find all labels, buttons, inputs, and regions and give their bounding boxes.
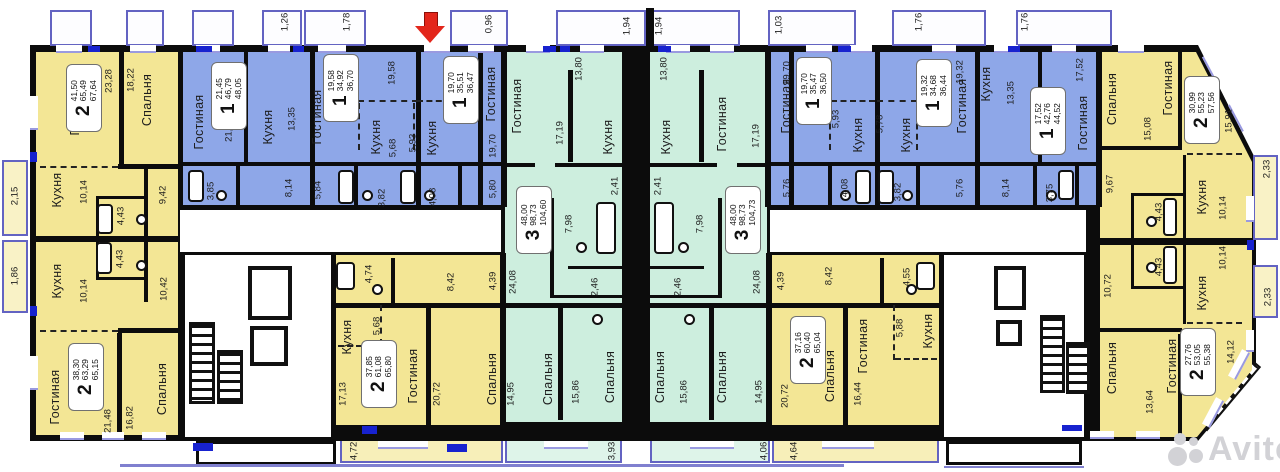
balcony <box>126 10 164 46</box>
window <box>1246 196 1254 222</box>
dimension-label: 13,80 <box>659 57 670 81</box>
dimension-label: 5,76 <box>955 179 966 198</box>
window <box>30 356 38 390</box>
window <box>710 45 734 53</box>
window-sill-accent <box>1008 46 1020 52</box>
dimension-label: 17,19 <box>555 121 566 145</box>
dimension-label: 4,43 <box>115 250 126 269</box>
elevator-shaft <box>248 266 292 320</box>
dimension-label: 1,03 <box>774 16 785 35</box>
staircase <box>217 350 243 404</box>
sanitary-icon <box>678 242 689 253</box>
apartment-rooms-count: 3 <box>732 230 754 241</box>
dashed-partition <box>40 330 118 332</box>
balcony <box>556 10 646 46</box>
window <box>1090 431 1114 439</box>
room-label: Кухня <box>1195 180 1209 215</box>
dimension-label: 4,64 <box>789 442 800 461</box>
wall <box>550 295 622 298</box>
wall <box>118 164 178 169</box>
balcony <box>304 10 366 46</box>
apartment-areas: 19,7035,4736,50 <box>800 73 828 94</box>
apartment-area-value: 65,15 <box>91 359 100 380</box>
wall <box>828 166 832 207</box>
apartment-card: 237,1660,4065,04 <box>790 316 826 384</box>
dimension-label: 13,35 <box>287 107 298 131</box>
room-label: Кухня <box>899 118 913 153</box>
apartment-card-inner: 227,7653,0555,38 <box>1182 330 1214 394</box>
apartment-area-value: 104,73 <box>748 200 757 226</box>
wall <box>766 253 772 425</box>
wall <box>650 163 717 167</box>
room-label: Кухня <box>425 121 439 156</box>
wall <box>1100 240 1252 245</box>
apartment-card: 119,3234,6836,44 <box>916 59 952 127</box>
apartment-areas: 30,9955,2357,56 <box>1188 92 1216 113</box>
dimension-label: 15,91 <box>1224 109 1235 133</box>
window-sill-accent <box>560 46 570 52</box>
room-label: Кухня <box>921 314 935 349</box>
apartment-area-value: 36,47 <box>466 72 475 93</box>
window <box>268 45 290 53</box>
dimension-label: 17,19 <box>751 124 762 148</box>
apartment-card: 230,9955,2357,56 <box>1184 76 1220 144</box>
wall <box>391 258 395 305</box>
room-label: Кухня <box>601 120 615 155</box>
dimension-label: 16,82 <box>125 406 136 430</box>
apartment-card: 117,5242,7644,52 <box>1030 87 1066 155</box>
dimension-label: 7,98 <box>564 215 575 234</box>
window <box>56 45 82 53</box>
bathtub-icon <box>855 170 871 204</box>
dimension-label: 5,68 <box>372 317 383 336</box>
dimension-label: 5,88 <box>895 319 906 338</box>
dimension-label: 1,78 <box>342 13 353 32</box>
window-sill-accent <box>1062 425 1082 431</box>
wall <box>916 166 920 207</box>
stairwell-lobby <box>196 441 336 465</box>
room-label: Гостиная <box>310 90 324 145</box>
apartment-areas: 19,3234,6836,44 <box>920 75 948 96</box>
ground-line <box>944 466 1084 468</box>
apartment-rooms-count: 2 <box>73 105 95 116</box>
dimension-label: 2,41 <box>653 177 664 196</box>
dimension-label: 2,33 <box>1263 288 1274 307</box>
dimension-label: 3,75 <box>1045 184 1056 203</box>
room-label: Спальня <box>155 363 169 415</box>
wall <box>236 166 240 207</box>
bathtub-icon <box>96 242 112 274</box>
dimension-label: 20,72 <box>432 382 443 406</box>
room-label: Кухня <box>851 118 865 153</box>
apartment-areas: 21,4546,7948,05 <box>215 78 243 99</box>
room-label: Гостиная <box>715 97 729 152</box>
room-label: Спальня <box>140 74 154 126</box>
bathtub-icon <box>654 202 674 254</box>
dimension-label: 1,76 <box>1020 13 1031 32</box>
window-sill-accent <box>1247 240 1254 250</box>
dimension-label: 4,08 <box>840 179 851 198</box>
apartment-area-value: 57,56 <box>1207 92 1216 113</box>
apartment-card-inner: 119,3234,6836,44 <box>918 61 950 125</box>
corridor <box>180 210 501 252</box>
room-label: Гостиная <box>856 319 870 374</box>
apartment-card-inner: 119,5834,9236,70 <box>325 56 357 120</box>
dimension-label: 5,80 <box>488 180 499 199</box>
window <box>580 45 604 53</box>
apartment-card: 237,8561,0865,80 <box>361 340 397 408</box>
apartment-area-value: 36,70 <box>346 70 355 91</box>
elevator-shaft <box>996 320 1022 346</box>
apartment-card: 121,4546,7948,05 <box>211 62 247 130</box>
dimension-label: 10,14 <box>1218 196 1229 220</box>
apartment-rooms-count: 1 <box>330 95 352 106</box>
dimension-label: 15,08 <box>1143 117 1154 141</box>
wall <box>1131 193 1134 240</box>
wall <box>458 166 462 207</box>
dimension-label: 3,85 <box>206 182 217 201</box>
window <box>850 45 872 53</box>
dimension-label: 19,32 <box>955 60 966 84</box>
dimension-label: 3,82 <box>893 183 904 202</box>
window-sill-accent <box>293 46 304 52</box>
elevator-shaft <box>250 326 288 366</box>
window <box>60 432 84 440</box>
dimension-label: 10,14 <box>1218 246 1229 270</box>
dimension-label: 21,48 <box>103 409 114 433</box>
window-sill-accent <box>193 443 213 451</box>
wall <box>650 266 704 269</box>
window <box>690 441 734 449</box>
apartment-card: 227,7653,0555,38 <box>1180 328 1216 396</box>
dimension-label: 4,39 <box>776 272 787 291</box>
wall <box>1033 166 1037 207</box>
ground-line <box>120 464 844 467</box>
dimension-label: 0,96 <box>484 15 495 34</box>
dimension-label: 17,52 <box>1075 58 1086 82</box>
bathtub-icon <box>400 170 416 204</box>
apartment-area-value: 48,05 <box>234 78 243 99</box>
window-sill-accent <box>838 46 851 52</box>
sanitary-icon <box>136 214 147 225</box>
dashed-partition <box>358 100 418 102</box>
sanitary-icon <box>902 190 913 201</box>
window-sill-accent <box>30 306 37 316</box>
wall <box>770 162 1100 166</box>
dimension-label: 14,12 <box>1226 340 1237 364</box>
stairwell-lobby <box>946 441 1082 465</box>
apartment-areas: 37,8561,0865,80 <box>365 356 393 377</box>
bathtub-icon <box>97 204 113 234</box>
room-label: Кухня <box>340 320 354 355</box>
wall <box>1100 146 1182 150</box>
dimension-label: 4,39 <box>488 272 499 291</box>
apartment-areas: 19,5834,9236,70 <box>327 70 355 91</box>
floor-plan: ГостинаяСпальняКухня23,2818,2210,144,439… <box>0 0 1280 472</box>
apartment-card: 348,0098,73104,73 <box>725 186 761 254</box>
room-label: Кухня <box>1195 276 1209 311</box>
dimension-label: 19,70 <box>488 134 499 158</box>
dimension-label: 1,94 <box>622 17 633 36</box>
wall <box>117 333 122 437</box>
staircase <box>1066 342 1090 394</box>
bathtub-icon <box>1163 198 1177 236</box>
dimension-label: 14,95 <box>506 382 517 406</box>
apartment-rooms-count: 2 <box>1187 369 1209 380</box>
apartment-area-value: 55,38 <box>1203 344 1212 365</box>
room-label: Спальня <box>485 353 499 405</box>
dimension-label: 5,84 <box>313 181 324 200</box>
apartment-card-inner: 237,8561,0865,80 <box>363 342 395 406</box>
apartment-card: 119,5834,9236,70 <box>323 54 359 122</box>
dimension-label: 4,74 <box>364 265 375 284</box>
apartment-rooms-count: 1 <box>803 98 825 109</box>
apartment-card-inner: 238,3063,2965,15 <box>70 345 102 409</box>
avito-logo-icon <box>1168 433 1204 467</box>
sanitary-icon <box>362 190 373 201</box>
balcony <box>192 10 234 46</box>
wall <box>505 303 622 308</box>
dimension-label: 8,42 <box>824 267 835 286</box>
dimension-label: 2,46 <box>673 278 684 297</box>
wall <box>650 295 722 298</box>
wall <box>505 163 535 167</box>
dimension-label: 13,64 <box>1145 390 1156 414</box>
staircase <box>189 322 215 404</box>
wall <box>426 308 431 425</box>
wall <box>699 70 704 162</box>
room-label: Кухня <box>659 120 673 155</box>
apartment-areas: 41,5065,4967,64 <box>70 80 98 101</box>
room-label: Гостиная <box>192 95 206 150</box>
room-label: Гостиная <box>1161 61 1175 116</box>
sanitary-icon <box>216 190 227 201</box>
room-label: Кухня <box>50 173 64 208</box>
dashed-partition <box>40 166 118 168</box>
window <box>142 432 166 440</box>
dimension-label: 4,43 <box>1154 203 1165 222</box>
window <box>378 441 428 449</box>
dimension-label: 9,42 <box>158 186 169 205</box>
wall <box>555 163 622 167</box>
dimension-label: 19,70 <box>782 61 793 85</box>
apartment-rooms-count: 2 <box>797 357 819 368</box>
room-label: Спальня <box>1105 342 1119 394</box>
apartment-areas: 38,3063,2965,15 <box>72 359 100 380</box>
apartment-rooms-count: 2 <box>75 384 97 395</box>
dimension-label: 20,72 <box>780 384 791 408</box>
wall <box>558 308 563 420</box>
dimension-label: 7,98 <box>695 215 706 234</box>
entrance-arrow-head-icon <box>415 26 445 43</box>
dimension-label: 2,15 <box>10 187 21 206</box>
wall <box>1100 328 1182 332</box>
room-label: Спальня <box>715 351 729 403</box>
dimension-label: 3,82 <box>377 189 388 208</box>
room-label: Гостиная <box>484 67 498 122</box>
avito-watermark: Avito <box>1168 430 1280 469</box>
dashed-partition <box>877 100 917 102</box>
wall <box>1131 193 1185 196</box>
wall <box>144 169 148 236</box>
apartment-area-value: 65,80 <box>384 356 393 377</box>
room-label: Спальня <box>541 353 555 405</box>
wall <box>354 166 358 207</box>
dimension-label: 2,33 <box>1262 160 1273 179</box>
apartment-rooms-count: 3 <box>523 230 545 241</box>
sanitary-icon <box>576 242 587 253</box>
window <box>424 45 450 53</box>
apartment-card: 348,0098,73104,60 <box>516 186 552 254</box>
dimension-label: 15,86 <box>571 380 582 404</box>
apartment-card-inner: 348,0098,73104,73 <box>727 188 759 252</box>
bathtub-icon <box>336 262 355 290</box>
dimension-label: 1,76 <box>914 13 925 32</box>
dashed-partition <box>1187 322 1242 324</box>
window-sill-accent <box>362 426 377 434</box>
room-label: Спальня <box>1105 73 1119 125</box>
dimension-label: 4,72 <box>349 442 360 461</box>
wall <box>1075 166 1079 207</box>
dimension-label: 23,28 <box>104 69 115 93</box>
dimension-label: 13,80 <box>574 57 585 81</box>
apartment-rooms-count: 1 <box>1037 128 1059 139</box>
apartment-areas: 48,0098,73104,60 <box>520 200 548 226</box>
sanitary-icon <box>372 284 383 295</box>
dimension-label: 14,95 <box>754 380 765 404</box>
apartment-card-inner: 237,1660,4065,04 <box>792 318 824 382</box>
wall <box>96 196 146 199</box>
dimension-label: 24,08 <box>508 270 519 294</box>
apartment-card-inner: 121,4546,7948,05 <box>213 64 245 128</box>
sanitary-icon <box>136 260 147 271</box>
room-label: Гостиная <box>1076 96 1090 151</box>
wall <box>501 52 507 207</box>
bathtub-icon <box>188 170 204 202</box>
bathtub-icon <box>596 202 616 254</box>
dimension-label: 10,72 <box>1103 274 1114 298</box>
room-label: Спальня <box>603 351 617 403</box>
dimension-label: 5,76 <box>782 179 793 198</box>
apartment-area-value: 36,44 <box>939 75 948 96</box>
dimension-label: 16,44 <box>853 382 864 406</box>
apartment-area-value: 36,50 <box>819 73 828 94</box>
window <box>130 45 156 53</box>
window <box>102 432 124 440</box>
room-label: Гостиная <box>779 79 793 134</box>
dimension-label: 3,93 <box>607 442 618 461</box>
wall <box>709 308 714 420</box>
apartment-card-inner: 241,5065,4967,64 <box>68 66 100 130</box>
apartment-area-value: 104,60 <box>539 200 548 226</box>
wall <box>718 198 722 298</box>
dimension-label: 19,58 <box>387 61 398 85</box>
dimension-label: 4,55 <box>902 268 913 287</box>
avito-watermark-text: Avito <box>1208 430 1280 469</box>
window <box>822 441 874 449</box>
wall <box>336 303 503 308</box>
dimension-label: 8,14 <box>284 179 295 198</box>
window <box>806 45 832 53</box>
wall <box>765 52 771 207</box>
dimension-label: 10,42 <box>159 277 170 301</box>
window-sill-accent <box>196 46 212 52</box>
window <box>544 441 588 449</box>
window <box>1118 45 1144 53</box>
apartment-card: 119,7035,5136,47 <box>443 56 479 124</box>
window-sill-accent <box>658 46 671 52</box>
dimension-label: 8,42 <box>446 273 457 292</box>
apartment-card-inner: 119,7035,4736,50 <box>798 59 830 123</box>
window-sill-accent <box>447 444 467 452</box>
window <box>468 45 494 53</box>
wall <box>771 303 939 308</box>
dimension-label: 5,78 <box>875 115 886 134</box>
apartment-areas: 48,0098,73104,73 <box>729 200 757 226</box>
window <box>1136 431 1160 439</box>
wall <box>119 52 124 166</box>
room-label: Кухня <box>50 264 64 299</box>
apartment-card-inner: 230,9955,2357,56 <box>1186 78 1218 142</box>
dimension-label: 9,67 <box>1105 175 1116 194</box>
balcony <box>450 10 508 46</box>
dimension-label: 8,14 <box>1001 179 1012 198</box>
wall <box>118 328 178 333</box>
dimension-label: 4,08 <box>428 188 439 207</box>
bathtub-icon <box>1058 170 1074 200</box>
apartment-card-inner: 119,7035,5136,47 <box>445 58 477 122</box>
wall <box>737 163 767 167</box>
window <box>932 45 956 53</box>
balcony <box>50 10 92 46</box>
sanitary-icon <box>592 314 603 325</box>
dimension-label: 24,08 <box>752 270 763 294</box>
wall <box>1131 286 1185 289</box>
dimension-label: 2,46 <box>590 278 601 297</box>
dimension-label: 18,22 <box>126 68 137 92</box>
apartment-card-inner: 348,0098,73104,60 <box>518 188 550 252</box>
apartment-area-value: 44,52 <box>1053 103 1062 124</box>
window-sill-accent <box>30 152 37 162</box>
apartment-rooms-count: 1 <box>450 97 472 108</box>
apartment-rooms-count: 2 <box>368 381 390 392</box>
bathtub-icon <box>1163 246 1177 284</box>
wall <box>144 240 148 302</box>
apartment-area-value: 65,04 <box>813 332 822 353</box>
room-label: Гостиная <box>510 79 524 134</box>
corridor <box>770 210 1086 252</box>
window <box>318 45 346 53</box>
dimension-label: 4,06 <box>759 442 770 461</box>
room-label: Кухня <box>261 110 275 145</box>
wall <box>1131 242 1134 289</box>
dimension-label: 4,43 <box>1154 258 1165 277</box>
bathtub-icon <box>338 170 354 204</box>
dimension-label: 10,14 <box>79 279 90 303</box>
apartment-areas: 19,7035,5136,47 <box>447 72 475 93</box>
dimension-label: 5,68 <box>388 139 399 158</box>
dimension-label: 4,43 <box>116 207 127 226</box>
dimension-label: 5,93 <box>831 110 842 129</box>
room-label: Кухня <box>369 120 383 155</box>
wall <box>416 52 421 207</box>
dimension-label: 1,86 <box>10 267 21 286</box>
wall <box>880 258 884 305</box>
apartment-area-value: 67,64 <box>89 80 98 101</box>
balcony <box>652 10 740 46</box>
room-label: Кухня <box>979 67 993 102</box>
dimension-label: 15,86 <box>679 380 690 404</box>
